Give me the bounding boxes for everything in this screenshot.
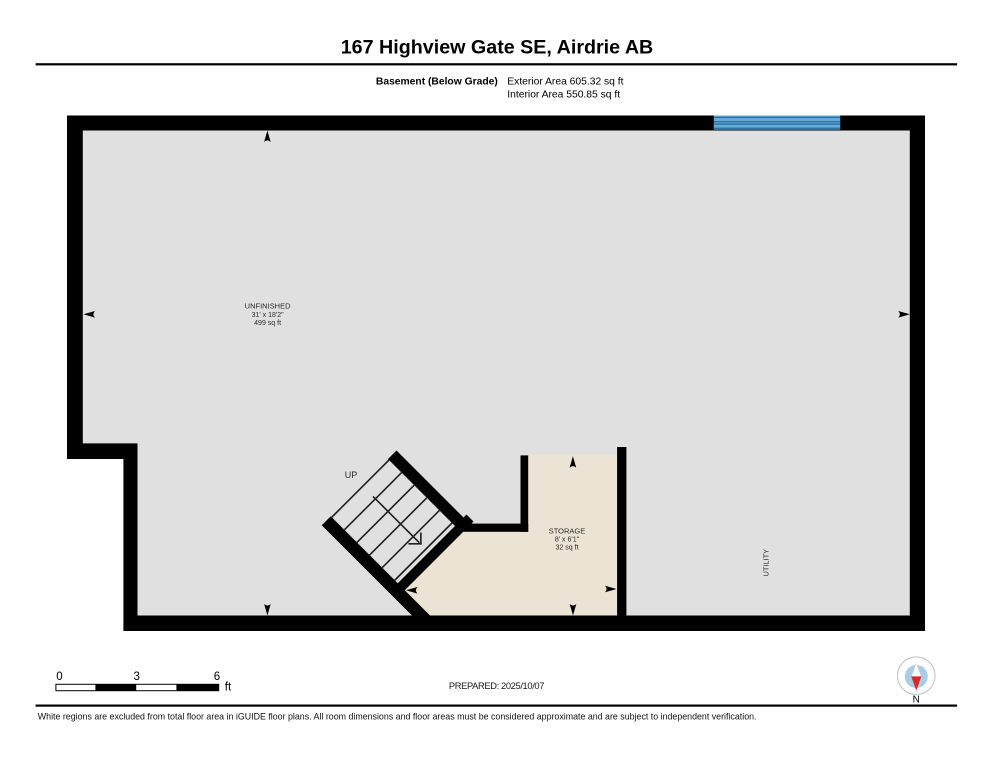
svg-text:32 sq ft: 32 sq ft xyxy=(556,545,579,552)
svg-text:ft: ft xyxy=(225,682,232,694)
svg-text:UP: UP xyxy=(345,470,358,480)
svg-text:Interior Area 550.85 sq ft: Interior Area 550.85 sq ft xyxy=(507,90,620,101)
svg-text:White regions are excluded fro: White regions are excluded from total fl… xyxy=(38,712,757,722)
svg-text:167 Highview Gate SE, Airdrie: 167 Highview Gate SE, Airdrie AB xyxy=(341,37,654,59)
svg-text:N: N xyxy=(913,694,920,705)
svg-text:0: 0 xyxy=(56,671,62,683)
svg-text:Basement (Below Grade): Basement (Below Grade) xyxy=(376,76,498,87)
svg-text:31' x 18'2": 31' x 18'2" xyxy=(252,312,285,319)
svg-text:8' x 6'1": 8' x 6'1" xyxy=(555,536,580,543)
svg-text:3: 3 xyxy=(133,671,139,683)
svg-text:6: 6 xyxy=(214,671,220,683)
svg-text:PREPARED: 2025/10/07: PREPARED: 2025/10/07 xyxy=(449,681,544,691)
svg-text:UTILITY: UTILITY xyxy=(761,549,770,577)
svg-text:STORAGE: STORAGE xyxy=(549,527,586,536)
svg-text:499 sq ft: 499 sq ft xyxy=(254,320,281,327)
svg-text:Exterior Area 605.32 sq ft: Exterior Area 605.32 sq ft xyxy=(507,76,623,87)
svg-text:UNFINISHED: UNFINISHED xyxy=(245,302,291,311)
